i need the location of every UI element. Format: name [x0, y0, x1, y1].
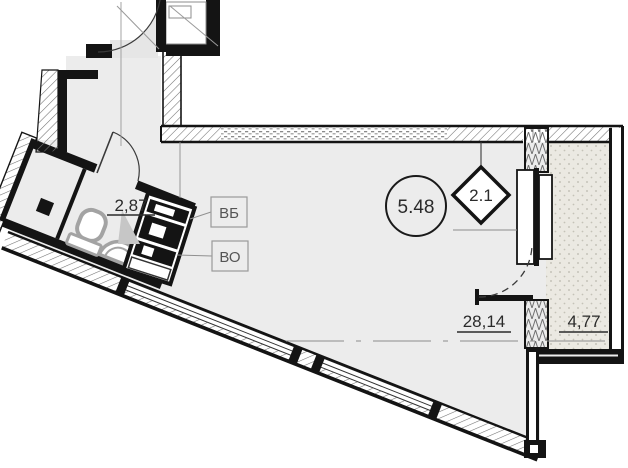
balcony-door-leaf	[477, 295, 533, 301]
balcony-area-value: 4,77	[567, 312, 600, 331]
balcony-door-hinge-tick	[475, 289, 479, 305]
balcony-right-wall	[609, 126, 624, 364]
entry-stub-wall	[206, 0, 220, 50]
circle-marker-value: 5.48	[398, 197, 435, 218]
entry-left-wall	[58, 70, 67, 152]
right-wall-lower	[524, 348, 546, 458]
entry-door-leaf	[156, 0, 166, 52]
entry-left-exterior-band	[36, 70, 58, 152]
main-room-area-value: 28,14	[463, 312, 506, 331]
main-room-area-label: 28,14	[457, 312, 511, 332]
vo-label-text: ВО	[219, 249, 240, 266]
partition-pier-top	[525, 128, 548, 172]
top-wall	[161, 126, 623, 142]
diamond-marker-value: 2.1	[469, 186, 493, 205]
floor-plan-page: 2,87 28,14 4,77 5.48 2.1 ВБ ВО	[0, 0, 628, 468]
floor-plan: 2,87 28,14 4,77 5.48 2.1 ВБ ВО	[0, 0, 628, 468]
balcony-window-block	[517, 168, 552, 266]
partition-pier-bottom	[525, 300, 548, 348]
vb-label-text: ВБ	[219, 205, 239, 222]
bathroom-area-value: 2,87	[114, 196, 147, 215]
balcony-bottom-wall	[527, 349, 624, 364]
entry-right-wall	[163, 44, 181, 130]
